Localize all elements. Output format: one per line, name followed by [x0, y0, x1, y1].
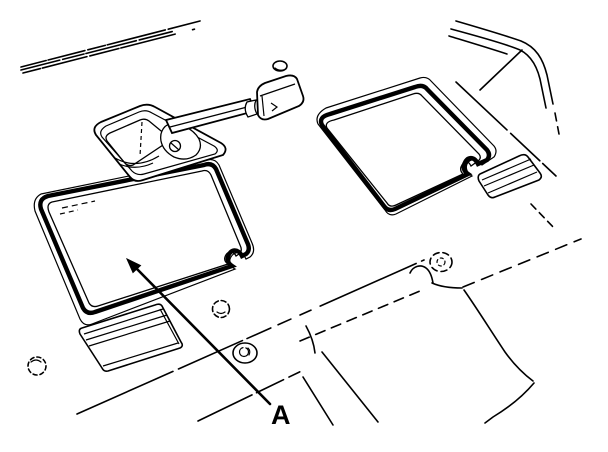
transmission-tunnel-lines	[410, 239, 581, 423]
body-cowl-lines	[21, 21, 203, 73]
gearshift-lever	[166, 75, 304, 133]
lever-collar	[245, 100, 257, 117]
grommet-left	[28, 357, 46, 375]
door-opening-lines	[449, 21, 559, 229]
grommet-spiral	[233, 343, 257, 363]
cover-seal	[321, 86, 489, 210]
grommet-right	[430, 253, 452, 272]
technical-line-drawing: A	[0, 0, 608, 452]
illustration-canvas: A	[0, 0, 608, 452]
callout-label-a: A	[271, 400, 291, 430]
grommet-top	[273, 61, 287, 71]
floor-access-cover-right	[317, 77, 496, 214]
grommet-mid	[213, 301, 230, 318]
